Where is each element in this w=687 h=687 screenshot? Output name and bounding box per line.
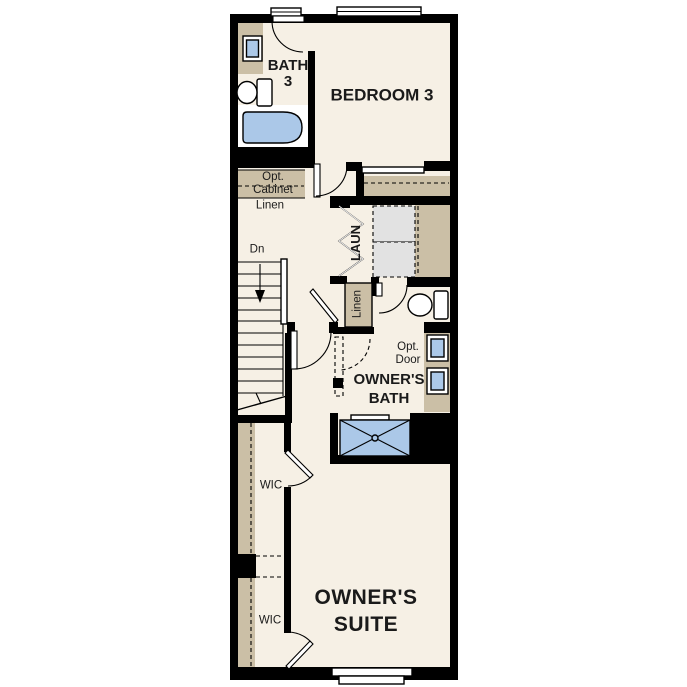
shower-drain: [372, 435, 378, 441]
owners-toilet-bowl: [408, 294, 432, 316]
owners-sink-2-basin: [431, 372, 444, 390]
laundry-counter: [415, 204, 450, 277]
owners-toilet-tank: [434, 291, 448, 319]
laundry-label: LAUN: [349, 225, 363, 261]
wic-lower-label: WIC: [259, 615, 281, 628]
bath3-sink-basin: [247, 40, 259, 57]
wic-upper-label: WIC: [260, 480, 282, 493]
window-bottom-outer: [339, 676, 404, 684]
linen-hall-label: Linen: [256, 200, 284, 213]
owners-sink-1-basin: [431, 339, 444, 357]
owners-bath-door-leaf: [376, 283, 382, 296]
opt-door-label: Opt. Door: [396, 341, 421, 367]
bath3-toilet-bowl: [237, 82, 257, 104]
owners-suite-label: OWNER'S SUITE: [315, 584, 418, 638]
bedroom3-label: BEDROOM 3: [331, 87, 434, 106]
bath3-label: BATH 3: [268, 58, 309, 90]
chase-column: [232, 554, 256, 578]
bathtub: [243, 112, 302, 143]
bedroom3-door-leaf: [314, 164, 320, 197]
owners-bath-label: OWNER'S BATH: [353, 370, 424, 408]
closet-shelf: [362, 167, 424, 173]
stair-handrail: [281, 259, 287, 324]
wic-closet-strip: [237, 421, 255, 668]
opt-cabinet-label: Opt. Cabinet: [253, 171, 293, 197]
shower-door: [351, 415, 389, 420]
window-bottom: [332, 668, 412, 676]
stairs-down-label: Dn: [250, 244, 265, 257]
washer: [373, 206, 415, 242]
owners-suite-door-leaf: [291, 331, 297, 369]
dryer: [373, 242, 415, 277]
floor-plan: BATH 3 BEDROOM 3 Opt. Cabinet Linen Dn L…: [0, 0, 687, 687]
bath3-door-leaf: [273, 16, 304, 22]
linen-closet-label: Linen: [352, 290, 365, 318]
